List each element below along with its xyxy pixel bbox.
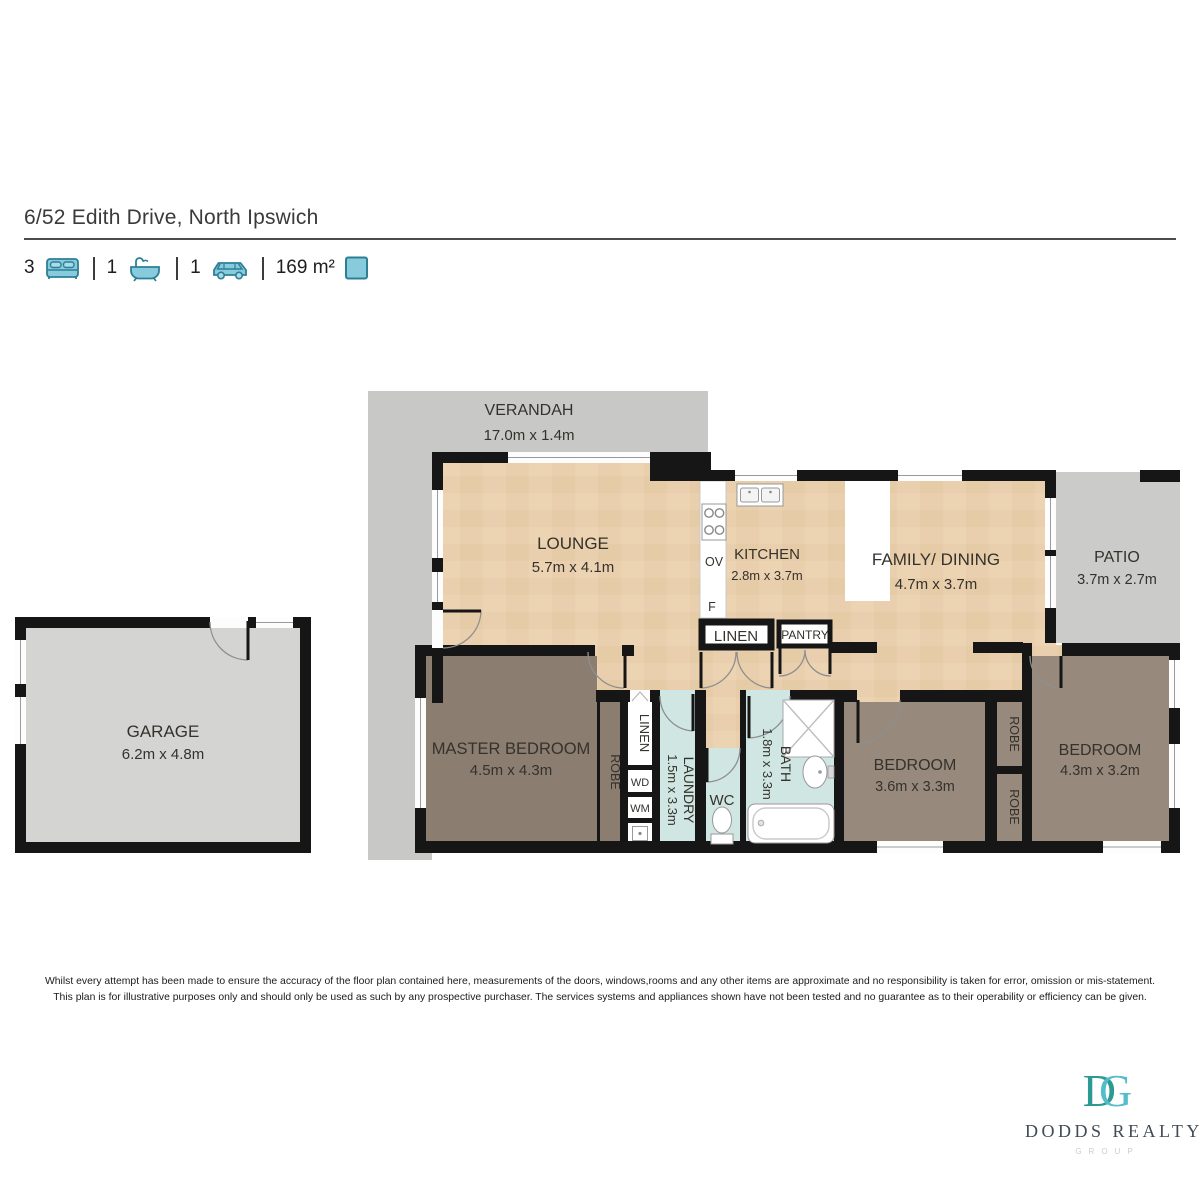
toilet-icon <box>711 807 733 844</box>
oven-label: OV <box>705 555 724 569</box>
family-dining-label: FAMILY/ DINING <box>872 550 1000 569</box>
linen-hall-label: LINEN <box>637 714 652 752</box>
agency-logo: DG DODDS REALTY GROUP <box>1025 1068 1190 1156</box>
disclaimer-line-2: This plan is for illustrative purposes o… <box>0 990 1200 1006</box>
bath-dims: 1.8m x 3.3m <box>760 728 775 800</box>
master-bedroom-label: MASTER BEDROOM <box>432 740 591 758</box>
robe-a-label: ROBE <box>1007 716 1021 751</box>
laundry-label: LAUNDRY <box>681 757 697 824</box>
logo-group: GROUP <box>1025 1147 1190 1156</box>
lounge-dims: 5.7m x 4.1m <box>532 559 615 576</box>
bathtub-icon <box>748 804 834 843</box>
laundry-tub-icon <box>633 827 648 841</box>
verandah-dims: 17.0m x 1.4m <box>484 427 575 444</box>
garage-label: GARAGE <box>127 722 200 741</box>
kitchen-sink <box>737 484 783 506</box>
kitchen-passage <box>845 481 890 601</box>
patio-dims: 3.7m x 2.7m <box>1077 572 1157 588</box>
kitchen-dims: 2.8m x 3.7m <box>731 568 803 583</box>
lounge-label: LOUNGE <box>537 534 609 553</box>
verandah-label: VERANDAH <box>485 402 574 419</box>
disclaimer-line-1: Whilst every attempt has been made to en… <box>0 974 1200 990</box>
bedroom3-dims: 4.3m x 3.2m <box>1060 763 1140 779</box>
kitchen-counter <box>700 481 726 618</box>
disclaimer: Whilst every attempt has been made to en… <box>0 974 1200 1005</box>
kitchen-label: KITCHEN <box>734 546 800 563</box>
stove-icon <box>702 504 726 540</box>
patio-label: PATIO <box>1094 549 1140 566</box>
bath-label: BATH <box>778 746 794 782</box>
floorplan-page: 6/52 Edith Drive, North Ipswich 3 1 1 <box>0 0 1200 1200</box>
bedroom3-label: BEDROOM <box>1059 742 1142 759</box>
wc-entry-floor <box>706 688 740 748</box>
logo-monogram: DG <box>1025 1068 1190 1118</box>
laundry-dims: 1.5m x 3.3m <box>665 754 680 826</box>
wd-label: WD <box>631 777 649 789</box>
family-dining-dims: 4.7m x 3.7m <box>895 576 978 593</box>
master-bedroom-dims: 4.5m x 4.3m <box>470 762 553 779</box>
wc-label: WC <box>710 792 735 809</box>
garage-dims: 6.2m x 4.8m <box>122 746 205 763</box>
logo-monogram-g: G <box>1099 1065 1132 1116</box>
logo-name: DODDS REALTY <box>1025 1121 1190 1142</box>
robe-b-label: ROBE <box>1007 789 1021 824</box>
master-robe-label: ROBE <box>608 754 622 789</box>
wm-label: WM <box>630 803 650 815</box>
bedroom2-dims: 3.6m x 3.3m <box>875 779 955 795</box>
pantry-label: PANTRY <box>781 628 829 642</box>
fridge-label: F <box>708 600 716 614</box>
linen-closet-label: LINEN <box>714 628 758 645</box>
bedroom2-label: BEDROOM <box>874 757 957 774</box>
floor-plan: VERANDAH 17.0m x 1.4m LOUNGE 5.7m x 4.1m… <box>0 0 1200 1200</box>
